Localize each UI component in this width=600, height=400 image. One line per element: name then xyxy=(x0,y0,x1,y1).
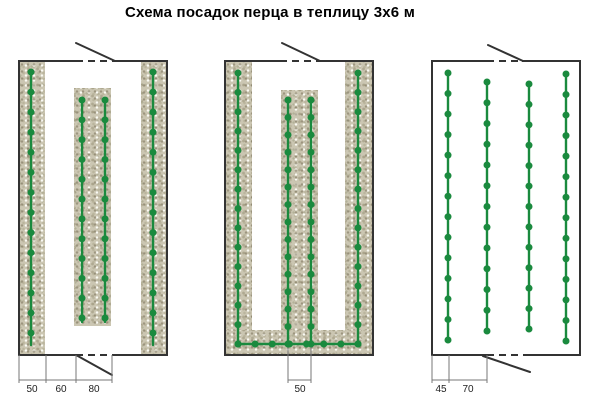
plant-dot xyxy=(563,112,570,119)
plant-dot xyxy=(484,99,491,106)
plant-dot xyxy=(286,341,293,348)
plant-dot xyxy=(252,341,259,348)
plant-dot xyxy=(484,182,491,189)
plant-dot xyxy=(28,289,35,296)
plant-dot xyxy=(563,338,570,345)
scheme-overlay: 506080504570 xyxy=(0,0,600,400)
plant-dot xyxy=(102,295,109,302)
plant-dot xyxy=(150,209,157,216)
plant-dot xyxy=(445,295,452,302)
plant-dot xyxy=(308,219,315,226)
plant-dot xyxy=(355,108,362,115)
plant-dot xyxy=(308,288,315,295)
plant-dot xyxy=(308,236,315,243)
dimension-label: 60 xyxy=(55,384,67,395)
dimension-label: 45 xyxy=(435,384,447,395)
plant-dot xyxy=(235,282,242,289)
plant-dot xyxy=(235,186,242,193)
plant-dot xyxy=(484,162,491,169)
plant-dot xyxy=(150,169,157,176)
plant-dot xyxy=(563,71,570,78)
plant-dot xyxy=(526,183,533,190)
plant-dot xyxy=(150,189,157,196)
dimension-label: 80 xyxy=(88,384,100,395)
plant-dot xyxy=(28,89,35,96)
greenhouse-frame xyxy=(225,61,373,355)
plant-dot xyxy=(484,286,491,293)
plant-dot xyxy=(79,275,86,282)
plant-dot xyxy=(235,224,242,231)
plant-dot xyxy=(285,114,292,121)
plant-dot xyxy=(102,315,109,322)
plant-dot xyxy=(235,128,242,135)
plant-dot xyxy=(235,244,242,251)
plant-dot xyxy=(79,196,86,203)
door-leaf xyxy=(282,43,320,61)
plant-dot xyxy=(28,269,35,276)
plant-dot xyxy=(79,295,86,302)
plant-dot xyxy=(102,116,109,123)
plant-dot xyxy=(355,70,362,77)
plant-dot xyxy=(235,302,242,309)
plant-dot xyxy=(150,309,157,316)
plant-dot xyxy=(526,223,533,230)
plant-dot xyxy=(355,302,362,309)
plant-dot xyxy=(79,97,86,104)
plant-dot xyxy=(28,209,35,216)
plant-dot xyxy=(235,341,242,348)
plant-dot xyxy=(150,149,157,156)
plant-dot xyxy=(526,121,533,128)
plant-dot xyxy=(235,263,242,270)
plant-dot xyxy=(563,214,570,221)
plant-dot xyxy=(150,229,157,236)
plant-dot xyxy=(235,321,242,328)
plant-dot xyxy=(102,255,109,262)
plant-dot xyxy=(526,142,533,149)
plant-dot xyxy=(285,271,292,278)
plant-dot xyxy=(526,101,533,108)
plant-dot xyxy=(79,315,86,322)
plant-dot xyxy=(79,255,86,262)
plant-dot xyxy=(445,90,452,97)
plant-dot xyxy=(445,70,452,77)
plant-dot xyxy=(235,89,242,96)
plant-dot xyxy=(445,213,452,220)
plant-dot xyxy=(79,235,86,242)
dimension-label: 50 xyxy=(26,384,38,395)
greenhouse-frame xyxy=(432,61,580,355)
door-leaf xyxy=(76,43,115,61)
plant-dot xyxy=(484,79,491,86)
plant-dot xyxy=(102,235,109,242)
plant-dot xyxy=(150,69,157,76)
planting-scheme-figure: Схема посадок перца в теплицу 3х6 м 5060… xyxy=(0,0,600,400)
plant-dot xyxy=(445,172,452,179)
plant-dot xyxy=(308,149,315,156)
plant-dot xyxy=(79,116,86,123)
plant-dot xyxy=(28,169,35,176)
plant-dot xyxy=(285,184,292,191)
plant-dot xyxy=(28,229,35,236)
plant-dot xyxy=(563,132,570,139)
plant-dot xyxy=(285,288,292,295)
plant-dot xyxy=(445,275,452,282)
plant-dot xyxy=(484,328,491,335)
plant-dot xyxy=(235,70,242,77)
plant-dot xyxy=(285,323,292,330)
plant-dot xyxy=(445,316,452,323)
plant-dot xyxy=(308,201,315,208)
plant-dot xyxy=(285,131,292,138)
plant-dot xyxy=(150,89,157,96)
plant-dot xyxy=(28,249,35,256)
plant-dot xyxy=(102,275,109,282)
plant-dot xyxy=(355,147,362,154)
plant-dot xyxy=(102,196,109,203)
plant-dot xyxy=(484,120,491,127)
plant-dot xyxy=(285,219,292,226)
plant-dot xyxy=(303,341,310,348)
plant-dot xyxy=(526,285,533,292)
plant-dot xyxy=(285,306,292,313)
plant-dot xyxy=(355,166,362,173)
plant-dot xyxy=(337,341,344,348)
plant-dot xyxy=(308,253,315,260)
plant-dot xyxy=(445,234,452,241)
plant-dot xyxy=(285,97,292,104)
plant-dot xyxy=(445,193,452,200)
plant-dot xyxy=(269,341,276,348)
plant-dot xyxy=(285,253,292,260)
plant-dot xyxy=(235,147,242,154)
plant-dot xyxy=(79,136,86,143)
plant-dot xyxy=(28,309,35,316)
plant-dot xyxy=(355,244,362,251)
plant-dot xyxy=(563,153,570,160)
plant-dot xyxy=(355,224,362,231)
plant-dot xyxy=(308,184,315,191)
door-leaf xyxy=(76,355,112,375)
plant-dot xyxy=(563,235,570,242)
plant-dot xyxy=(563,91,570,98)
plant-dot xyxy=(308,97,315,104)
dimension-label: 50 xyxy=(294,384,306,395)
plant-dot xyxy=(355,205,362,212)
plant-dot xyxy=(445,111,452,118)
plant-dot xyxy=(563,317,570,324)
plant-dot xyxy=(235,205,242,212)
plant-dot xyxy=(484,203,491,210)
plant-dot xyxy=(79,156,86,163)
plant-dot xyxy=(484,265,491,272)
plant-dot xyxy=(445,131,452,138)
plant-dot xyxy=(102,136,109,143)
plant-dot xyxy=(563,173,570,180)
plant-dot xyxy=(285,201,292,208)
plant-dot xyxy=(484,307,491,314)
plant-dot xyxy=(526,81,533,88)
plant-dot xyxy=(150,129,157,136)
plant-dot xyxy=(235,108,242,115)
plant-dot xyxy=(235,166,242,173)
plant-dot xyxy=(308,131,315,138)
plant-dot xyxy=(308,271,315,278)
plant-dot xyxy=(484,224,491,231)
plant-dot xyxy=(445,254,452,261)
plant-dot xyxy=(445,337,452,344)
dimension-label: 70 xyxy=(462,384,474,395)
plant-dot xyxy=(102,176,109,183)
plant-dot xyxy=(285,149,292,156)
plant-dot xyxy=(526,203,533,210)
plant-dot xyxy=(308,114,315,121)
plant-dot xyxy=(355,186,362,193)
plant-dot xyxy=(150,249,157,256)
door-leaf xyxy=(488,45,523,61)
plant-dot xyxy=(308,323,315,330)
plant-dot xyxy=(526,305,533,312)
plant-dot xyxy=(484,245,491,252)
plant-dot xyxy=(28,189,35,196)
plant-dot xyxy=(102,97,109,104)
plant-dot xyxy=(79,176,86,183)
plant-dot xyxy=(355,341,362,348)
plant-dot xyxy=(563,255,570,262)
plant-dot xyxy=(355,321,362,328)
plant-dot xyxy=(102,215,109,222)
plant-dot xyxy=(285,166,292,173)
plant-dot xyxy=(28,149,35,156)
plant-dot xyxy=(308,166,315,173)
plant-dot xyxy=(526,264,533,271)
plant-dot xyxy=(320,341,327,348)
plant-dot xyxy=(355,263,362,270)
plant-dot xyxy=(355,89,362,96)
plant-dot xyxy=(150,289,157,296)
plant-dot xyxy=(526,162,533,169)
plant-dot xyxy=(28,129,35,136)
plant-dot xyxy=(28,109,35,116)
plant-dot xyxy=(526,244,533,251)
plant-dot xyxy=(355,128,362,135)
plant-dot xyxy=(308,306,315,313)
plant-dot xyxy=(355,282,362,289)
plant-dot xyxy=(150,109,157,116)
plant-dot xyxy=(102,156,109,163)
plant-dot xyxy=(285,236,292,243)
plant-dot xyxy=(28,330,35,337)
plant-dot xyxy=(445,152,452,159)
plant-dot xyxy=(150,269,157,276)
plant-dot xyxy=(484,141,491,148)
door-leaf xyxy=(483,356,530,372)
plant-dot xyxy=(563,296,570,303)
plant-dot xyxy=(79,215,86,222)
plant-dot xyxy=(150,330,157,337)
plant-dot xyxy=(526,326,533,333)
plant-dot xyxy=(563,276,570,283)
plant-dot xyxy=(563,194,570,201)
plant-dot xyxy=(28,69,35,76)
greenhouse-frame xyxy=(19,61,167,355)
